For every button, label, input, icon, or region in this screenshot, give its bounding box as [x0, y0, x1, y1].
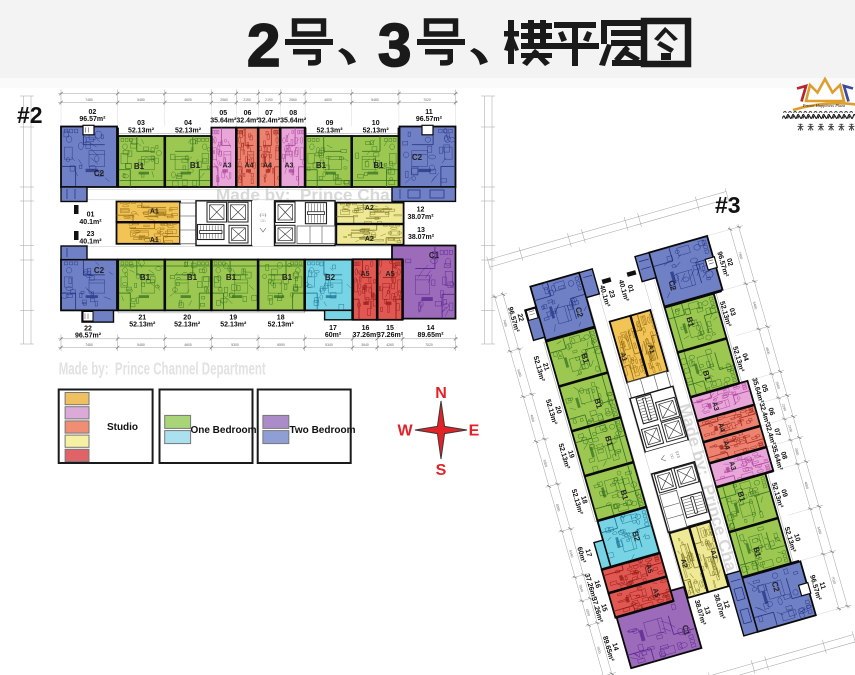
- svg-text:E: E: [469, 423, 480, 440]
- svg-text:Studio: Studio: [107, 422, 138, 433]
- svg-text:3: 3: [378, 12, 411, 79]
- svg-text:Two Bedroom: Two Bedroom: [290, 425, 356, 436]
- svg-text:N: N: [435, 385, 447, 402]
- svg-text:Made by: Prince Channel Depar: Made by: Prince Channel Department: [59, 359, 266, 379]
- svg-text:#3: #3: [715, 192, 741, 218]
- svg-text:One Bedroom: One Bedroom: [190, 425, 256, 436]
- svg-text:#2: #2: [17, 102, 43, 128]
- svg-text:W: W: [397, 423, 413, 440]
- svg-text:S: S: [436, 462, 447, 479]
- svg-text:Prince Happiness Plaza: Prince Happiness Plaza: [802, 103, 846, 108]
- svg-text:2: 2: [247, 12, 280, 79]
